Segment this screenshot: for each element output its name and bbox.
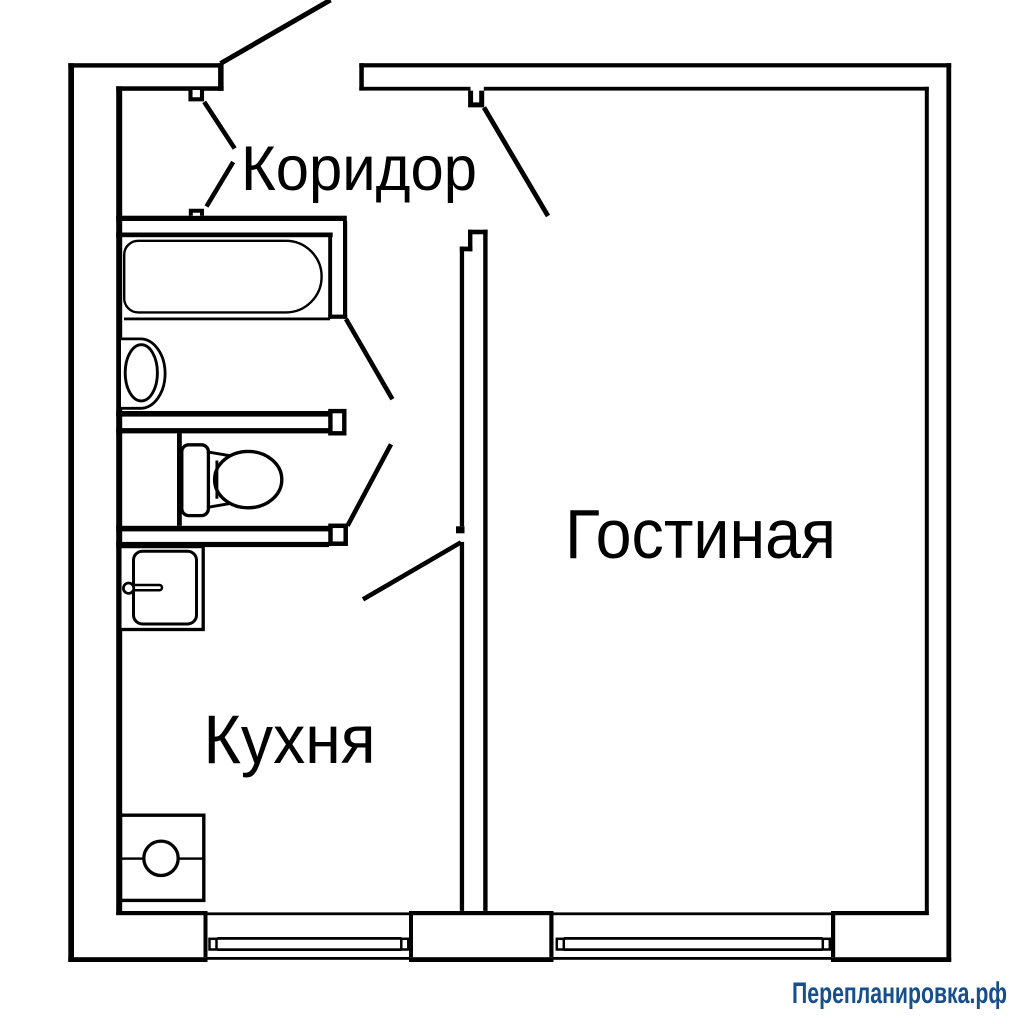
svg-text:Перепланировка.рф: Перепланировка.рф xyxy=(792,977,1007,1010)
svg-text:Коридор: Коридор xyxy=(241,134,477,204)
svg-text:Гостиная: Гостиная xyxy=(565,495,836,573)
svg-text:Кухня: Кухня xyxy=(204,701,376,778)
